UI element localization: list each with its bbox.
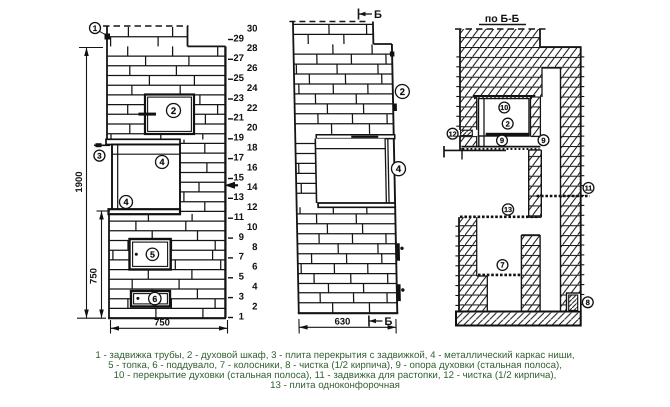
svg-text:Б: Б (374, 9, 382, 21)
svg-text:25: 25 (233, 73, 244, 84)
svg-text:9: 9 (239, 232, 244, 243)
svg-text:8: 8 (586, 298, 590, 307)
svg-text:29: 29 (233, 33, 244, 44)
svg-text:1: 1 (239, 311, 245, 322)
svg-text:5: 5 (150, 250, 155, 260)
svg-text:12: 12 (247, 202, 258, 213)
svg-text:21: 21 (233, 113, 244, 124)
svg-text:27: 27 (233, 53, 244, 64)
svg-text:630: 630 (334, 317, 350, 328)
svg-text:30: 30 (247, 23, 258, 34)
svg-text:4: 4 (252, 282, 258, 293)
svg-text:1900: 1900 (74, 171, 85, 192)
svg-text:26: 26 (247, 63, 258, 74)
svg-text:17: 17 (233, 152, 244, 163)
svg-text:1: 1 (93, 24, 98, 33)
svg-text:11: 11 (234, 212, 245, 223)
svg-text:2: 2 (252, 301, 257, 312)
svg-text:22: 22 (247, 103, 258, 114)
svg-text:13 - плита одноконфорочная: 13 - плита одноконфорочная (270, 380, 400, 391)
svg-text:28: 28 (247, 43, 258, 54)
svg-text:9: 9 (541, 136, 545, 145)
svg-text:7: 7 (239, 252, 244, 263)
svg-text:19: 19 (233, 133, 244, 144)
svg-text:23: 23 (233, 93, 244, 104)
svg-text:4: 4 (123, 197, 128, 207)
svg-text:750: 750 (89, 268, 100, 284)
svg-text:3: 3 (239, 291, 244, 302)
svg-text:7: 7 (500, 261, 504, 270)
svg-text:8: 8 (252, 242, 258, 253)
svg-text:12: 12 (449, 129, 457, 138)
svg-text:15: 15 (233, 172, 244, 183)
svg-text:16: 16 (247, 162, 258, 173)
svg-text:по Б-Б: по Б-Б (485, 13, 520, 25)
svg-text:750: 750 (154, 318, 170, 329)
svg-text:20: 20 (247, 123, 258, 134)
svg-text:2: 2 (171, 106, 176, 117)
svg-text:6: 6 (152, 294, 157, 304)
svg-text:13: 13 (504, 205, 512, 214)
svg-text:10: 10 (500, 103, 508, 112)
svg-text:18: 18 (247, 143, 258, 154)
svg-text:11: 11 (585, 184, 593, 193)
svg-text:10: 10 (247, 222, 258, 233)
svg-text:9: 9 (500, 136, 504, 145)
svg-text:5: 5 (239, 272, 245, 283)
svg-text:13: 13 (233, 192, 244, 203)
svg-text:3: 3 (97, 152, 102, 161)
svg-text:2: 2 (506, 119, 510, 128)
svg-text:14: 14 (247, 182, 258, 193)
svg-text:2: 2 (400, 87, 406, 98)
svg-text:4: 4 (159, 157, 164, 167)
svg-text:Б: Б (384, 316, 392, 328)
svg-text:4: 4 (396, 164, 402, 175)
svg-text:24: 24 (247, 83, 258, 94)
svg-text:6: 6 (252, 262, 257, 273)
